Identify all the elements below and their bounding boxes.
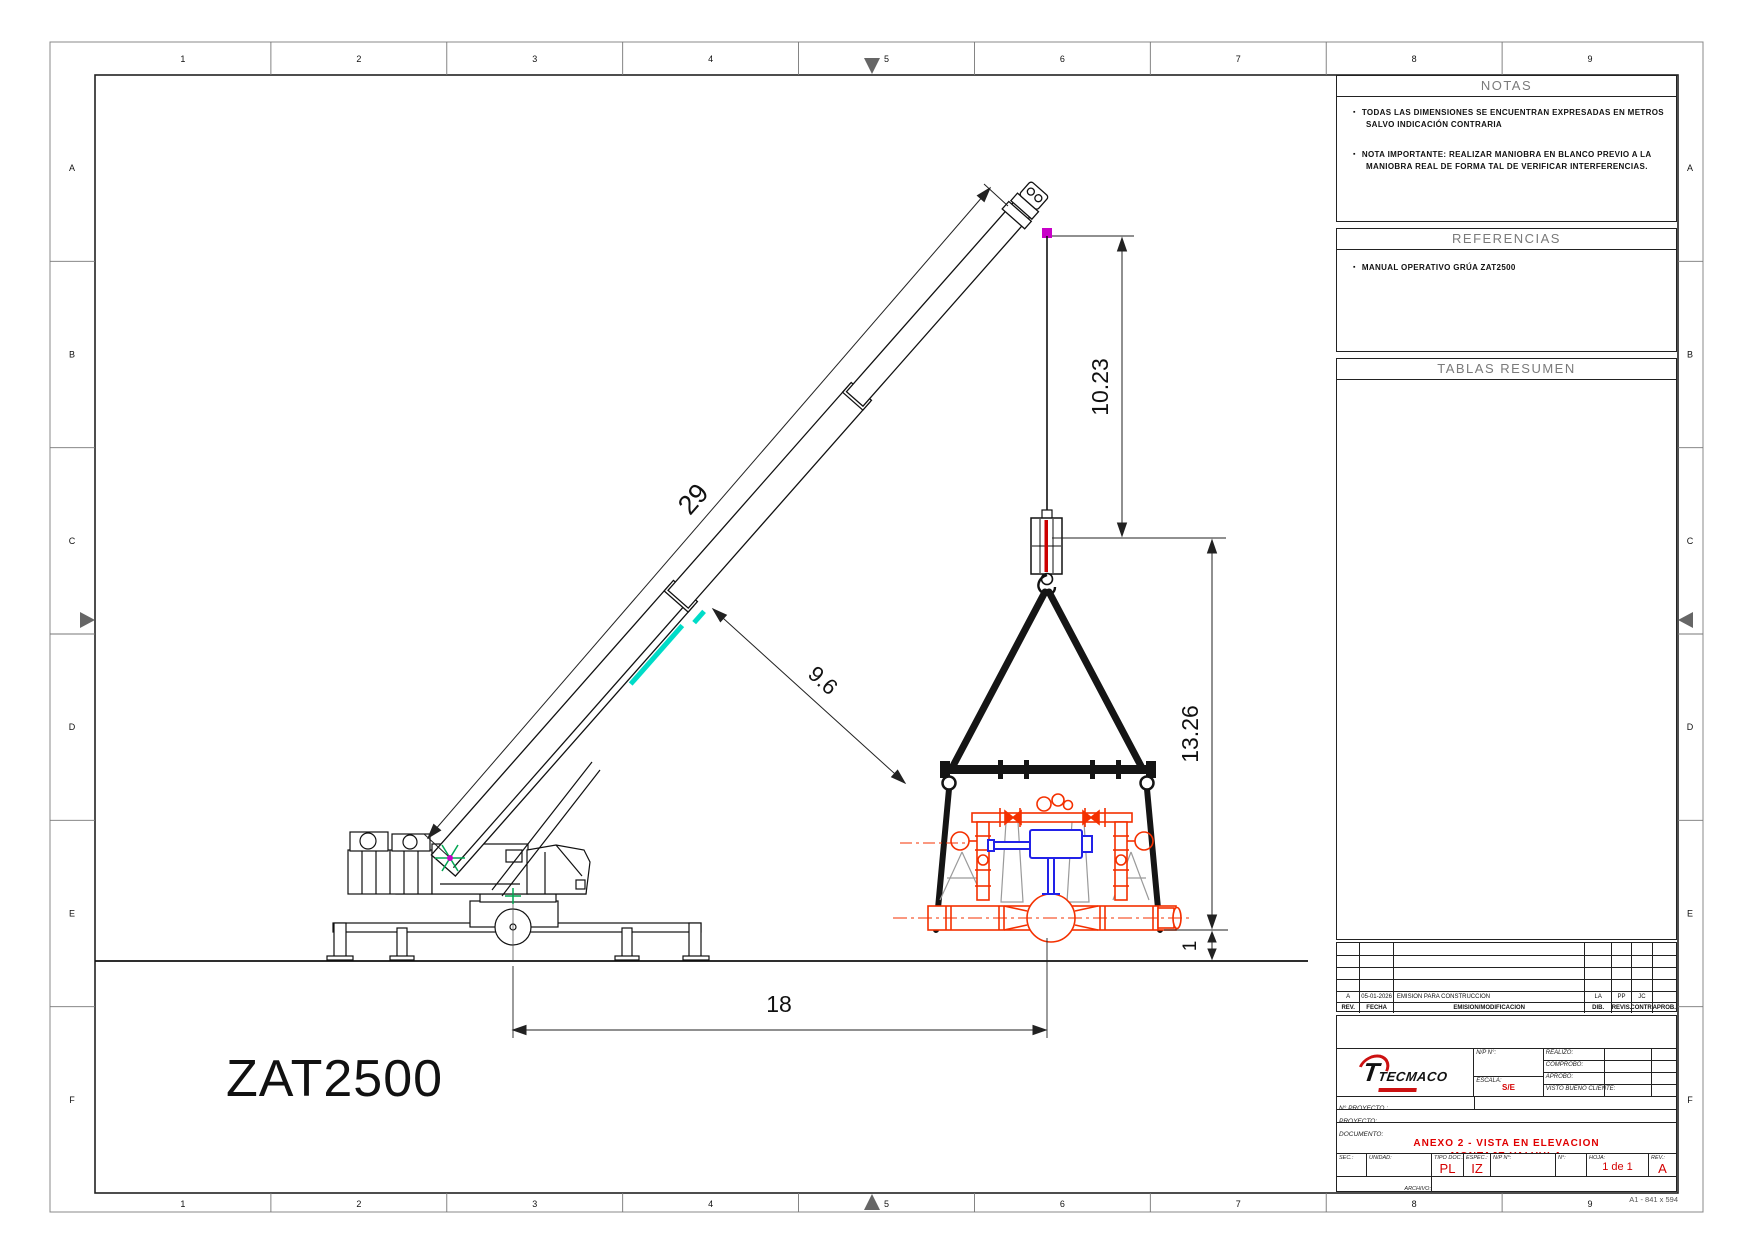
sign-label: REALIZÓ: [1544, 1049, 1604, 1060]
espec-label: ESPEC.: [1464, 1154, 1490, 1161]
grid-column-label: 3 [532, 1199, 537, 1209]
bullet-icon: ▪ [1353, 262, 1356, 274]
rev-value: A [1649, 1161, 1676, 1176]
note-text: TODAS LAS DIMENSIONES SE ENCUENTRAN EXPR… [1362, 107, 1664, 119]
grid-column-label: 7 [1236, 1199, 1241, 1209]
rev-cell: PP [1611, 992, 1631, 1002]
rev-data-row: A 05-01-2026 EMISION PARA CONSTRUCCION L… [1337, 991, 1676, 1002]
rev-header-row: REV. FECHA EMISION/MODIFICACION DIB. REV… [1337, 1002, 1676, 1013]
summary-tables-panel: TABLAS RESUMEN [1336, 358, 1677, 940]
rev-cell [1652, 992, 1676, 1002]
rev-header: CONTR. [1631, 1003, 1651, 1013]
np2-label: N/P N°: [1491, 1154, 1555, 1161]
grid-row-label: C [1687, 536, 1694, 546]
grid-row-label: D [69, 722, 76, 732]
notes-panel: NOTAS ▪ TODAS LAS DIMENSIONES SE ENCUENT… [1336, 75, 1677, 222]
hoja-value: 1 de 1 [1587, 1161, 1648, 1173]
shackle-left-icon [943, 777, 956, 790]
grid-column-label: 8 [1412, 1199, 1417, 1209]
dim-clearance-label: 1 [1180, 941, 1201, 952]
rev-cell: A [1337, 992, 1359, 1002]
unidad-label: UNIDAD: [1367, 1154, 1431, 1161]
grid-row-label: A [69, 163, 75, 173]
grid-column-label: 5 [884, 54, 889, 64]
grid-column-label: 4 [708, 1199, 713, 1209]
grid-column-label: 6 [1060, 1199, 1065, 1209]
grid-column-label: 7 [1236, 54, 1241, 64]
escala-value: S/E [1474, 1083, 1543, 1092]
note-item: SALVO INDICACIÓN CONTRARIA [1337, 119, 1676, 131]
rev-label: REV.: [1649, 1154, 1676, 1161]
bullet-icon: ▪ [1353, 149, 1356, 161]
grid-row-label: E [69, 909, 75, 919]
rev-header: REV. [1337, 1003, 1359, 1013]
grid-column-label: 2 [356, 54, 361, 64]
sign-label: APROBÓ: [1544, 1073, 1604, 1084]
grid-column-label: 3 [532, 54, 537, 64]
spreader-bar [940, 760, 1156, 790]
sheet-format-label: A1 - 841 x 594 [1560, 1195, 1678, 1204]
rev-cell: LA [1584, 992, 1610, 1002]
title-block: TTECMACO N/P N°: ESCALA: S/E REALIZÓ: [1336, 1015, 1677, 1192]
crane-boom [431, 178, 1062, 885]
center-mark-top-icon [864, 58, 880, 74]
grid-column-label: 6 [1060, 54, 1065, 64]
grid-row-label: F [1687, 1095, 1693, 1105]
rev-empty-row [1337, 979, 1676, 991]
grid-row-label: B [1687, 350, 1693, 360]
dim-head-to-hook-label: 10.23 [1087, 358, 1113, 416]
hoist-and-hook [1031, 236, 1062, 595]
hoja-label: HOJA: [1587, 1154, 1648, 1161]
shackle-right-icon [1141, 777, 1154, 790]
grid-column-label: 4 [708, 54, 713, 64]
logo-red-bar [1378, 1088, 1417, 1092]
note-item: ▪ TODAS LAS DIMENSIONES SE ENCUENTRAN EX… [1337, 107, 1676, 119]
grid-column-label: 1 [180, 54, 185, 64]
center-mark-bottom-icon [864, 1194, 880, 1210]
grid-column-label: 9 [1588, 54, 1593, 64]
bullet-icon: ▪ [1353, 107, 1356, 119]
center-mark-right-icon [1678, 612, 1693, 628]
tipodoc-label: TIPO DOC.: [1432, 1154, 1463, 1161]
proyecto-label: PROYECTO: [1337, 1110, 1676, 1122]
grid-column-label: 5 [884, 1199, 889, 1209]
document-title-line1: ANEXO 2 - VISTA EN ELEVACION [1337, 1137, 1676, 1150]
rev-empty-row [1337, 943, 1676, 955]
rev-cell: EMISION PARA CONSTRUCCION [1393, 992, 1585, 1002]
documento-label: DOCUMENTO: [1337, 1130, 1383, 1138]
reference-item: ▪ MANUAL OPERATIVO GRÚA ZAT2500 [1337, 262, 1676, 274]
note-text: NOTA IMPORTANTE: REALIZAR MANIOBRA EN BL… [1362, 149, 1652, 161]
grid-column-label: 1 [180, 1199, 185, 1209]
np-label: N/P N°: [1474, 1049, 1543, 1056]
grid-row-label: A [1687, 163, 1693, 173]
grid-column-label: 2 [356, 1199, 361, 1209]
num-label: N°: [1556, 1154, 1586, 1161]
tipodoc-value: PL [1432, 1161, 1463, 1176]
rev-cell: JC [1631, 992, 1651, 1002]
summary-tables-title: TABLAS RESUMEN [1337, 359, 1676, 380]
note-item: ▪ NOTA IMPORTANTE: REALIZAR MANIOBRA EN … [1337, 149, 1676, 161]
company-logo: TTECMACO [1337, 1049, 1473, 1096]
rev-header: EMISION/MODIFICACION [1393, 1003, 1585, 1013]
drawing-sheet-page: 112233445566778899AABBCCDDEEFF [0, 0, 1755, 1240]
grid-row-label: F [69, 1095, 75, 1105]
nproyecto-label: N° PROYECTO : [1337, 1097, 1474, 1109]
archivo-label: ARCHIVO: [1337, 1177, 1431, 1192]
rev-empty-row [1337, 967, 1676, 979]
references-panel: REFERENCIAS ▪ MANUAL OPERATIVO GRÚA ZAT2… [1336, 228, 1677, 352]
rev-header: REVIS. [1611, 1003, 1631, 1013]
crane-model-label: ZAT2500 [226, 1050, 443, 1108]
notes-title: NOTAS [1337, 76, 1676, 97]
references-title: REFERENCIAS [1337, 229, 1676, 250]
note-text: MANIOBRA REAL DE FORMA TAL DE VERIFICAR … [1366, 161, 1648, 173]
cyan-mark-small-icon [692, 610, 706, 625]
grid-row-label: E [1687, 909, 1693, 919]
center-mark-left-icon [80, 612, 95, 628]
reference-text: MANUAL OPERATIVO GRÚA ZAT2500 [1362, 262, 1516, 274]
dim-radius-label: 18 [766, 991, 792, 1017]
dim-boom-to-load-label: 9.6 [803, 661, 842, 700]
grid-row-label: B [69, 350, 75, 360]
dim-hook-to-pipe-label: 13.26 [1177, 705, 1203, 763]
grid-row-label: D [1687, 722, 1694, 732]
documento-row: DOCUMENTO: ANEXO 2 - VISTA EN ELEVACION … [1337, 1123, 1676, 1153]
sec-label: SEC.: [1337, 1154, 1366, 1161]
hook-block-red-stripe [1045, 520, 1049, 572]
espec-value: IZ [1464, 1161, 1490, 1176]
rev-cell: 05-01-2026 [1359, 992, 1393, 1002]
sign-label: COMPROBÓ: [1544, 1061, 1604, 1072]
document-title-line2: MONTAJE VALVULA [1337, 1150, 1676, 1153]
revision-table: A 05-01-2026 EMISION PARA CONSTRUCCION L… [1336, 942, 1677, 1012]
rev-empty-row [1337, 955, 1676, 967]
grid-column-label: 8 [1412, 54, 1417, 64]
note-item: MANIOBRA REAL DE FORMA TAL DE VERIFICAR … [1337, 161, 1676, 173]
grid-row-label: C [69, 536, 76, 546]
rev-header: APROB. [1652, 1003, 1676, 1013]
note-text: SALVO INDICACIÓN CONTRARIA [1366, 119, 1502, 131]
title-block-empty-strip [1337, 1016, 1676, 1048]
rev-header: DIB. [1584, 1003, 1610, 1013]
sign-label: VISTO BUENO CLIENTE: [1544, 1085, 1604, 1096]
rev-header: FECHA [1359, 1003, 1393, 1013]
